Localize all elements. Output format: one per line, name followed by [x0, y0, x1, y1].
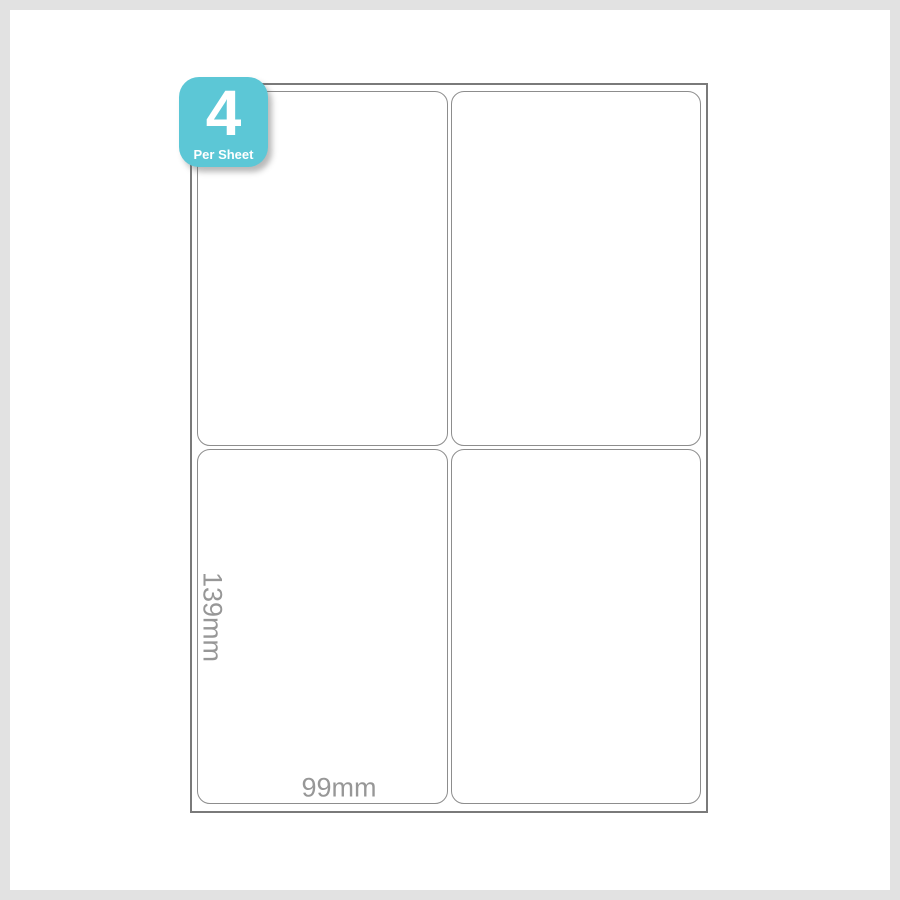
badge-count: 4	[206, 81, 242, 145]
label-width-dimension: 99mm	[301, 773, 376, 804]
label-sheet-product-image: 4 Per Sheet 139mm 99mm	[0, 0, 900, 900]
label-cell-top-right	[451, 91, 702, 446]
label-cell-bottom-left	[197, 449, 448, 804]
label-cell-bottom-right	[451, 449, 702, 804]
label-height-dimension: 139mm	[197, 572, 228, 662]
labels-grid	[197, 91, 701, 804]
a4-sheet-outline	[190, 83, 708, 813]
badge-caption: Per Sheet	[194, 147, 254, 162]
per-sheet-badge: 4 Per Sheet	[179, 77, 268, 167]
